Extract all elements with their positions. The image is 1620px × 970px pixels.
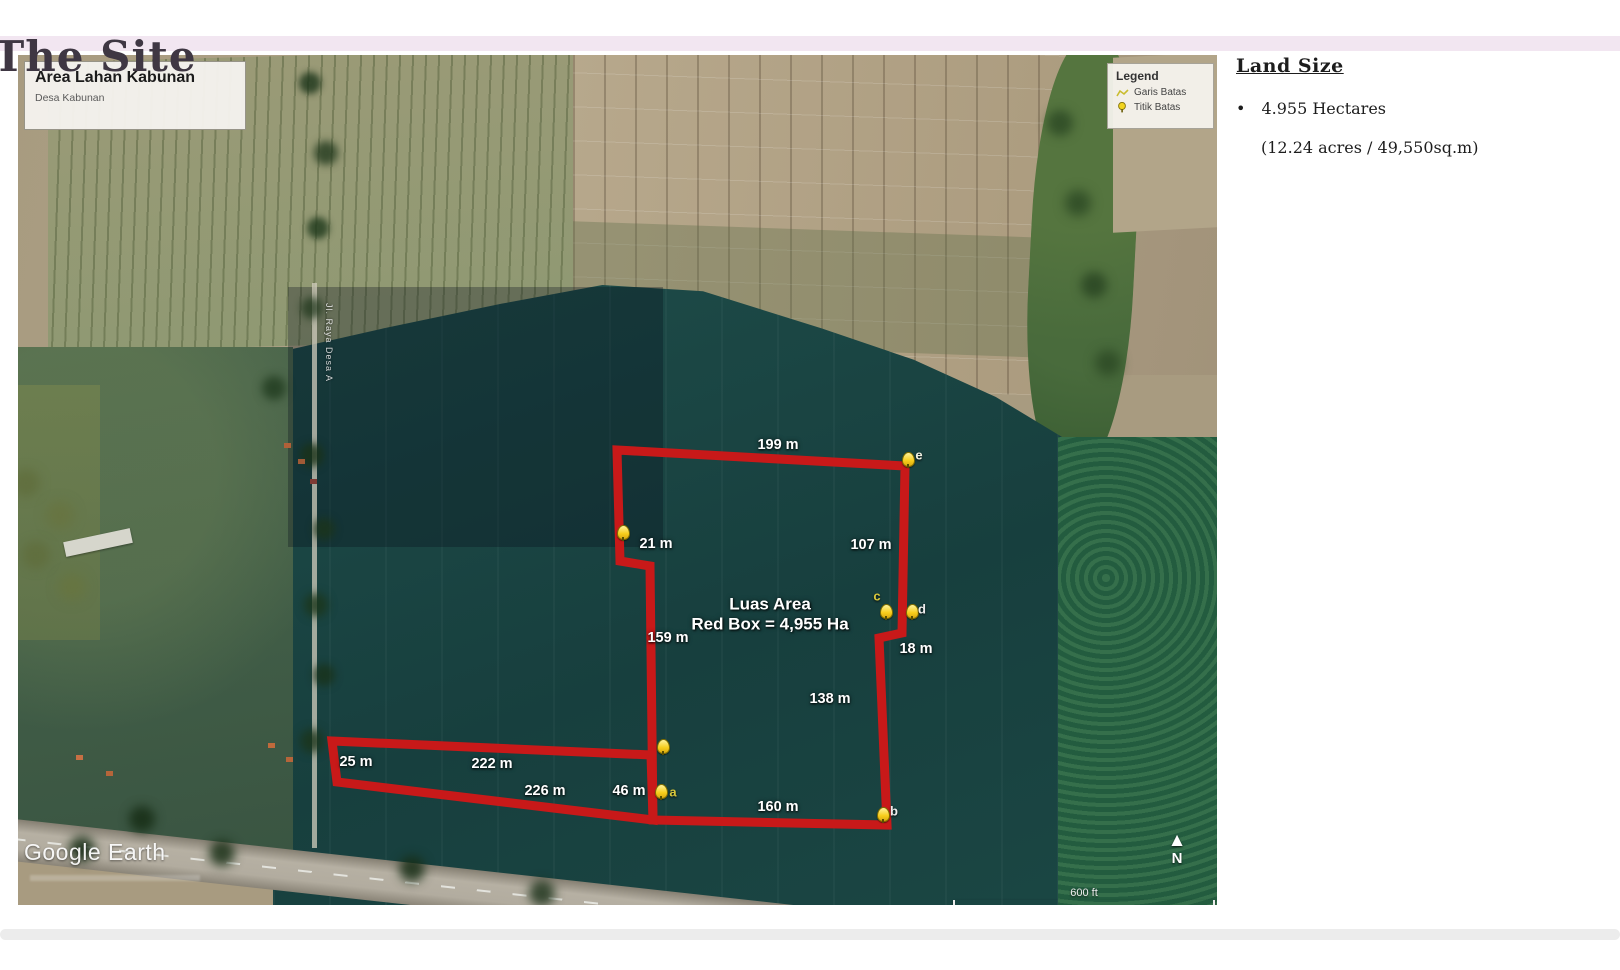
legend-item-titik-batas: Titik Batas	[1116, 102, 1205, 113]
satellite-map: Luas Area Red Box = 4,955 Ha Jl. Raya De…	[18, 55, 1217, 905]
bullet-icon: •	[1236, 99, 1245, 118]
map-annotations: Luas Area Red Box = 4,955 Ha Jl. Raya De…	[18, 55, 1217, 905]
area-callout: Luas Area Red Box = 4,955 Ha	[691, 594, 848, 633]
scale-label: 600 ft	[953, 887, 1215, 899]
map-info-subtitle: Desa Kabunan	[35, 92, 235, 104]
map-legend: Legend Garis Batas Titik Batas	[1107, 63, 1214, 129]
measurement-label: 18 m	[899, 641, 932, 657]
boundary-point-icon	[1116, 102, 1129, 113]
measurement-label: 138 m	[809, 691, 850, 707]
measurement-label: 226 m	[524, 783, 565, 799]
measurement-label: 159 m	[647, 630, 688, 646]
map-scale-bar: 600 ft	[953, 887, 1215, 905]
boundary-point-label: b	[890, 804, 898, 819]
boundary-line-icon	[1116, 88, 1129, 98]
north-indicator: ▲ N	[1164, 831, 1190, 867]
measurement-label: 160 m	[757, 799, 798, 815]
road-name-label: Jl. Raya Desa A	[324, 303, 334, 382]
north-label: N	[1164, 850, 1190, 867]
boundary-pin-icon	[657, 739, 670, 754]
legend-item-garis-batas: Garis Batas	[1116, 87, 1205, 98]
boundary-point-label: e	[915, 448, 922, 463]
boundary-pin-icon	[617, 525, 630, 540]
boundary-pin-icon	[655, 784, 668, 799]
measurement-label: 107 m	[850, 537, 891, 553]
measurement-label: 25 m	[339, 754, 372, 770]
area-callout-line2: Red Box = 4,955 Ha	[691, 614, 848, 634]
land-size-detail: (12.24 acres / 49,550sq.m)	[1261, 138, 1606, 157]
google-earth-watermark: Google Earth	[24, 839, 166, 866]
measurement-label: 199 m	[757, 437, 798, 453]
land-size-heading: Land Size	[1236, 55, 1606, 77]
boundary-point-label: c	[873, 589, 880, 604]
measurement-label: 46 m	[612, 783, 645, 799]
north-arrow-icon: ▲	[1164, 831, 1190, 850]
land-size-bullet-row: • 4.955 Hectares	[1236, 99, 1606, 118]
land-size-hectares: 4.955 Hectares	[1261, 99, 1386, 118]
legend-item-label: Garis Batas	[1134, 87, 1186, 98]
boundary-pin-icon	[880, 604, 893, 619]
measurement-label: 222 m	[471, 756, 512, 772]
title-underline-band	[0, 36, 1620, 51]
boundary-point-label: a	[669, 785, 676, 800]
page-title: The Site	[0, 32, 197, 81]
boundary-point-label: d	[918, 602, 926, 617]
measurement-label: 21 m	[639, 536, 672, 552]
map-attribution-text	[30, 875, 200, 881]
area-callout-line1: Luas Area	[691, 594, 848, 614]
scale-bar-line	[953, 900, 1215, 905]
legend-item-label: Titik Batas	[1134, 102, 1180, 113]
land-size-panel: Land Size • 4.955 Hectares (12.24 acres …	[1236, 55, 1606, 157]
boundary-pin-icon	[877, 807, 890, 822]
boundary-pin-icon	[902, 452, 915, 467]
footer-band	[0, 929, 1620, 940]
legend-title: Legend	[1116, 69, 1205, 83]
